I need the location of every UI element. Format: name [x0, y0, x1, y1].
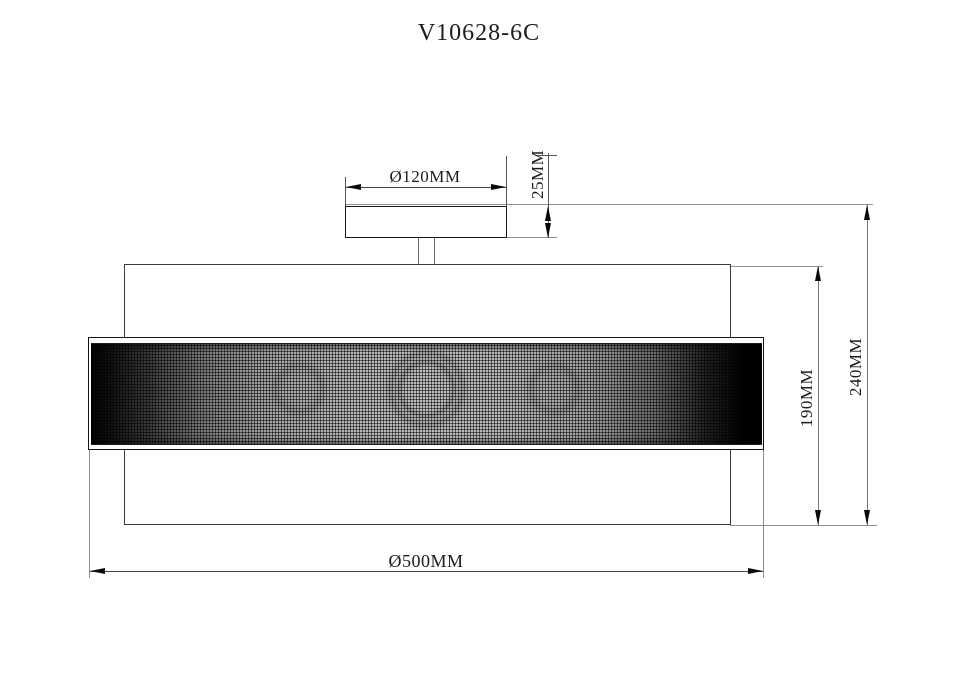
ceiling-canopy-outline — [345, 206, 507, 238]
drum-height-label: 190MM — [797, 368, 817, 428]
extension-line-shade-left — [89, 450, 90, 578]
dimension-line-total-height — [867, 205, 868, 525]
mounting-stem — [418, 238, 435, 265]
perforated-mesh-texture — [91, 343, 762, 445]
drawing-title: V10628-6C — [359, 20, 599, 47]
arrowhead-down-icon — [815, 510, 821, 525]
dimension-line-drum-height — [818, 266, 819, 525]
technical-drawing-page: V10628-6C Ø120MM 25MM 190MM 240MM Ø500MM — [0, 0, 960, 678]
arrowhead-up-icon — [864, 205, 870, 220]
arrowhead-down-icon — [545, 223, 551, 238]
arrowhead-right-icon — [748, 568, 763, 574]
mesh-shade-band — [88, 337, 764, 450]
arrowhead-up-icon — [815, 266, 821, 281]
arrowhead-up-icon — [545, 206, 551, 221]
total-height-label: 240MM — [846, 337, 866, 397]
arrowhead-down-icon — [864, 510, 870, 525]
canopy-diameter-label: Ø120MM — [360, 167, 490, 187]
extension-line-shade-right — [763, 450, 764, 578]
canopy-height-label: 25MM — [528, 153, 548, 199]
arrowhead-left-icon — [90, 568, 105, 574]
extension-line-canopy-left — [345, 177, 346, 206]
reference-line-drum-bottom — [730, 525, 877, 526]
extension-line-canopy-right — [506, 156, 507, 206]
shade-diameter-label: Ø500MM — [361, 551, 491, 572]
arrowhead-left-icon — [346, 184, 361, 190]
arrowhead-right-icon — [491, 184, 506, 190]
reference-line-drum-top — [730, 266, 823, 267]
